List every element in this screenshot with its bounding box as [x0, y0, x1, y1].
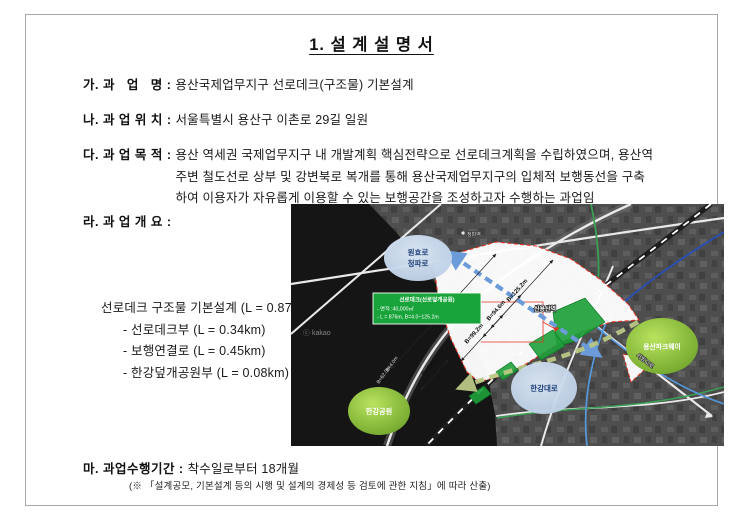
info-box-area: - 면적 :40,000㎡ — [377, 305, 414, 313]
cheongpa-label: 청파로 — [408, 258, 429, 268]
page-title: 1. 설 계 설 명 서 — [26, 31, 717, 55]
cheongpa-station-dot — [461, 231, 464, 234]
satellite-map: L=876m B=8.0m B=99.2m B=94.6m B=125.2m B… — [291, 204, 724, 446]
overview-summary-block: 선로데크 구조물 기본설계 (L = 0.87km) - 선로데크부 (L = … — [101, 298, 313, 384]
cheongpa-station-label: 청파역 — [467, 231, 481, 238]
wonhyo-cheongpa-bubble — [384, 235, 452, 281]
design-spec-page: 1. 설 계 설 명 서 가. 과 업 명 : 용산국제업무지구 선로데크(구조… — [0, 0, 743, 524]
project-location-label: 나. 과 업 위 치 : — [83, 110, 175, 132]
overview-title: 선로데크 구조물 기본설계 (L = 0.87km) — [101, 298, 313, 320]
kakao-watermark: ⓒ kakao — [303, 329, 331, 337]
overview-item-park: - 한강덮개공원부 (L = 0.08km) — [101, 363, 313, 385]
hangang-park-label: 한강공원 — [366, 407, 392, 416]
location-map-figure: L=876m B=8.0m B=99.2m B=94.6m B=125.2m B… — [291, 204, 724, 446]
project-name-row: 가. 과 업 명 : 용산국제업무지구 선로데크(구조물) 기본설계 — [83, 75, 701, 97]
page-title-text: 1. 설 계 설 명 서 — [309, 36, 434, 54]
info-box-length: - L = 876m, B=4.0~125.2m — [377, 315, 439, 321]
period-note: (※ 「설계공모, 기본설계 등의 시행 및 설계의 경제성 등 검토에 관한 … — [129, 478, 491, 492]
overview-item-deck: - 선로데크부 (L = 0.34km) — [101, 320, 313, 342]
project-overview-label: 라. 과 업 개 요 : — [83, 212, 175, 234]
project-location-value: 서울특별시 용산구 이촌로 29길 일원 — [175, 110, 368, 132]
deck-info-box: 선로데크(선로덮개공원) - 면적 :40,000㎡ - L = 876m, B… — [373, 293, 481, 324]
page-border-frame: 1. 설 계 설 명 서 가. 과 업 명 : 용산국제업무지구 선로데크(구조… — [25, 14, 718, 506]
wonhyo-label: 원효로 — [408, 247, 429, 257]
info-box-title: 선로데크(선로덮개공원) — [399, 296, 454, 304]
project-purpose-label: 다. 과 업 목 적 : — [83, 145, 175, 167]
project-location-row: 나. 과 업 위 치 : 서울특별시 용산구 이촌로 29길 일원 — [83, 110, 701, 132]
project-purpose-row: 다. 과 업 목 적 : 용산 역세권 국제업무지구 내 개발계획 핵심전략으로… — [83, 145, 701, 210]
hangang-daero-label: 한강대로 — [530, 383, 558, 393]
project-name-label: 가. 과 업 명 : — [83, 75, 175, 97]
overview-item-walkway: - 보행연결로 (L = 0.45km) — [101, 341, 313, 363]
project-purpose-value: 용산 역세권 국제업무지구 내 개발계획 핵심전략으로 선로데크계획을 수립하였… — [175, 145, 653, 210]
sinyongsan-station-label: 신용산역 — [534, 305, 556, 313]
purpose-line-1: 용산 역세권 국제업무지구 내 개발계획 핵심전략으로 선로데크계획을 수립하였… — [175, 145, 653, 167]
project-name-value: 용산국제업무지구 선로데크(구조물) 기본설계 — [175, 75, 413, 97]
purpose-line-2: 주변 철도선로 상부 및 강변북로 복개를 통해 용산국제업무지구의 입체적 보… — [175, 167, 653, 189]
yongsan-parkway-label: 용산파크웨이 — [643, 342, 681, 351]
